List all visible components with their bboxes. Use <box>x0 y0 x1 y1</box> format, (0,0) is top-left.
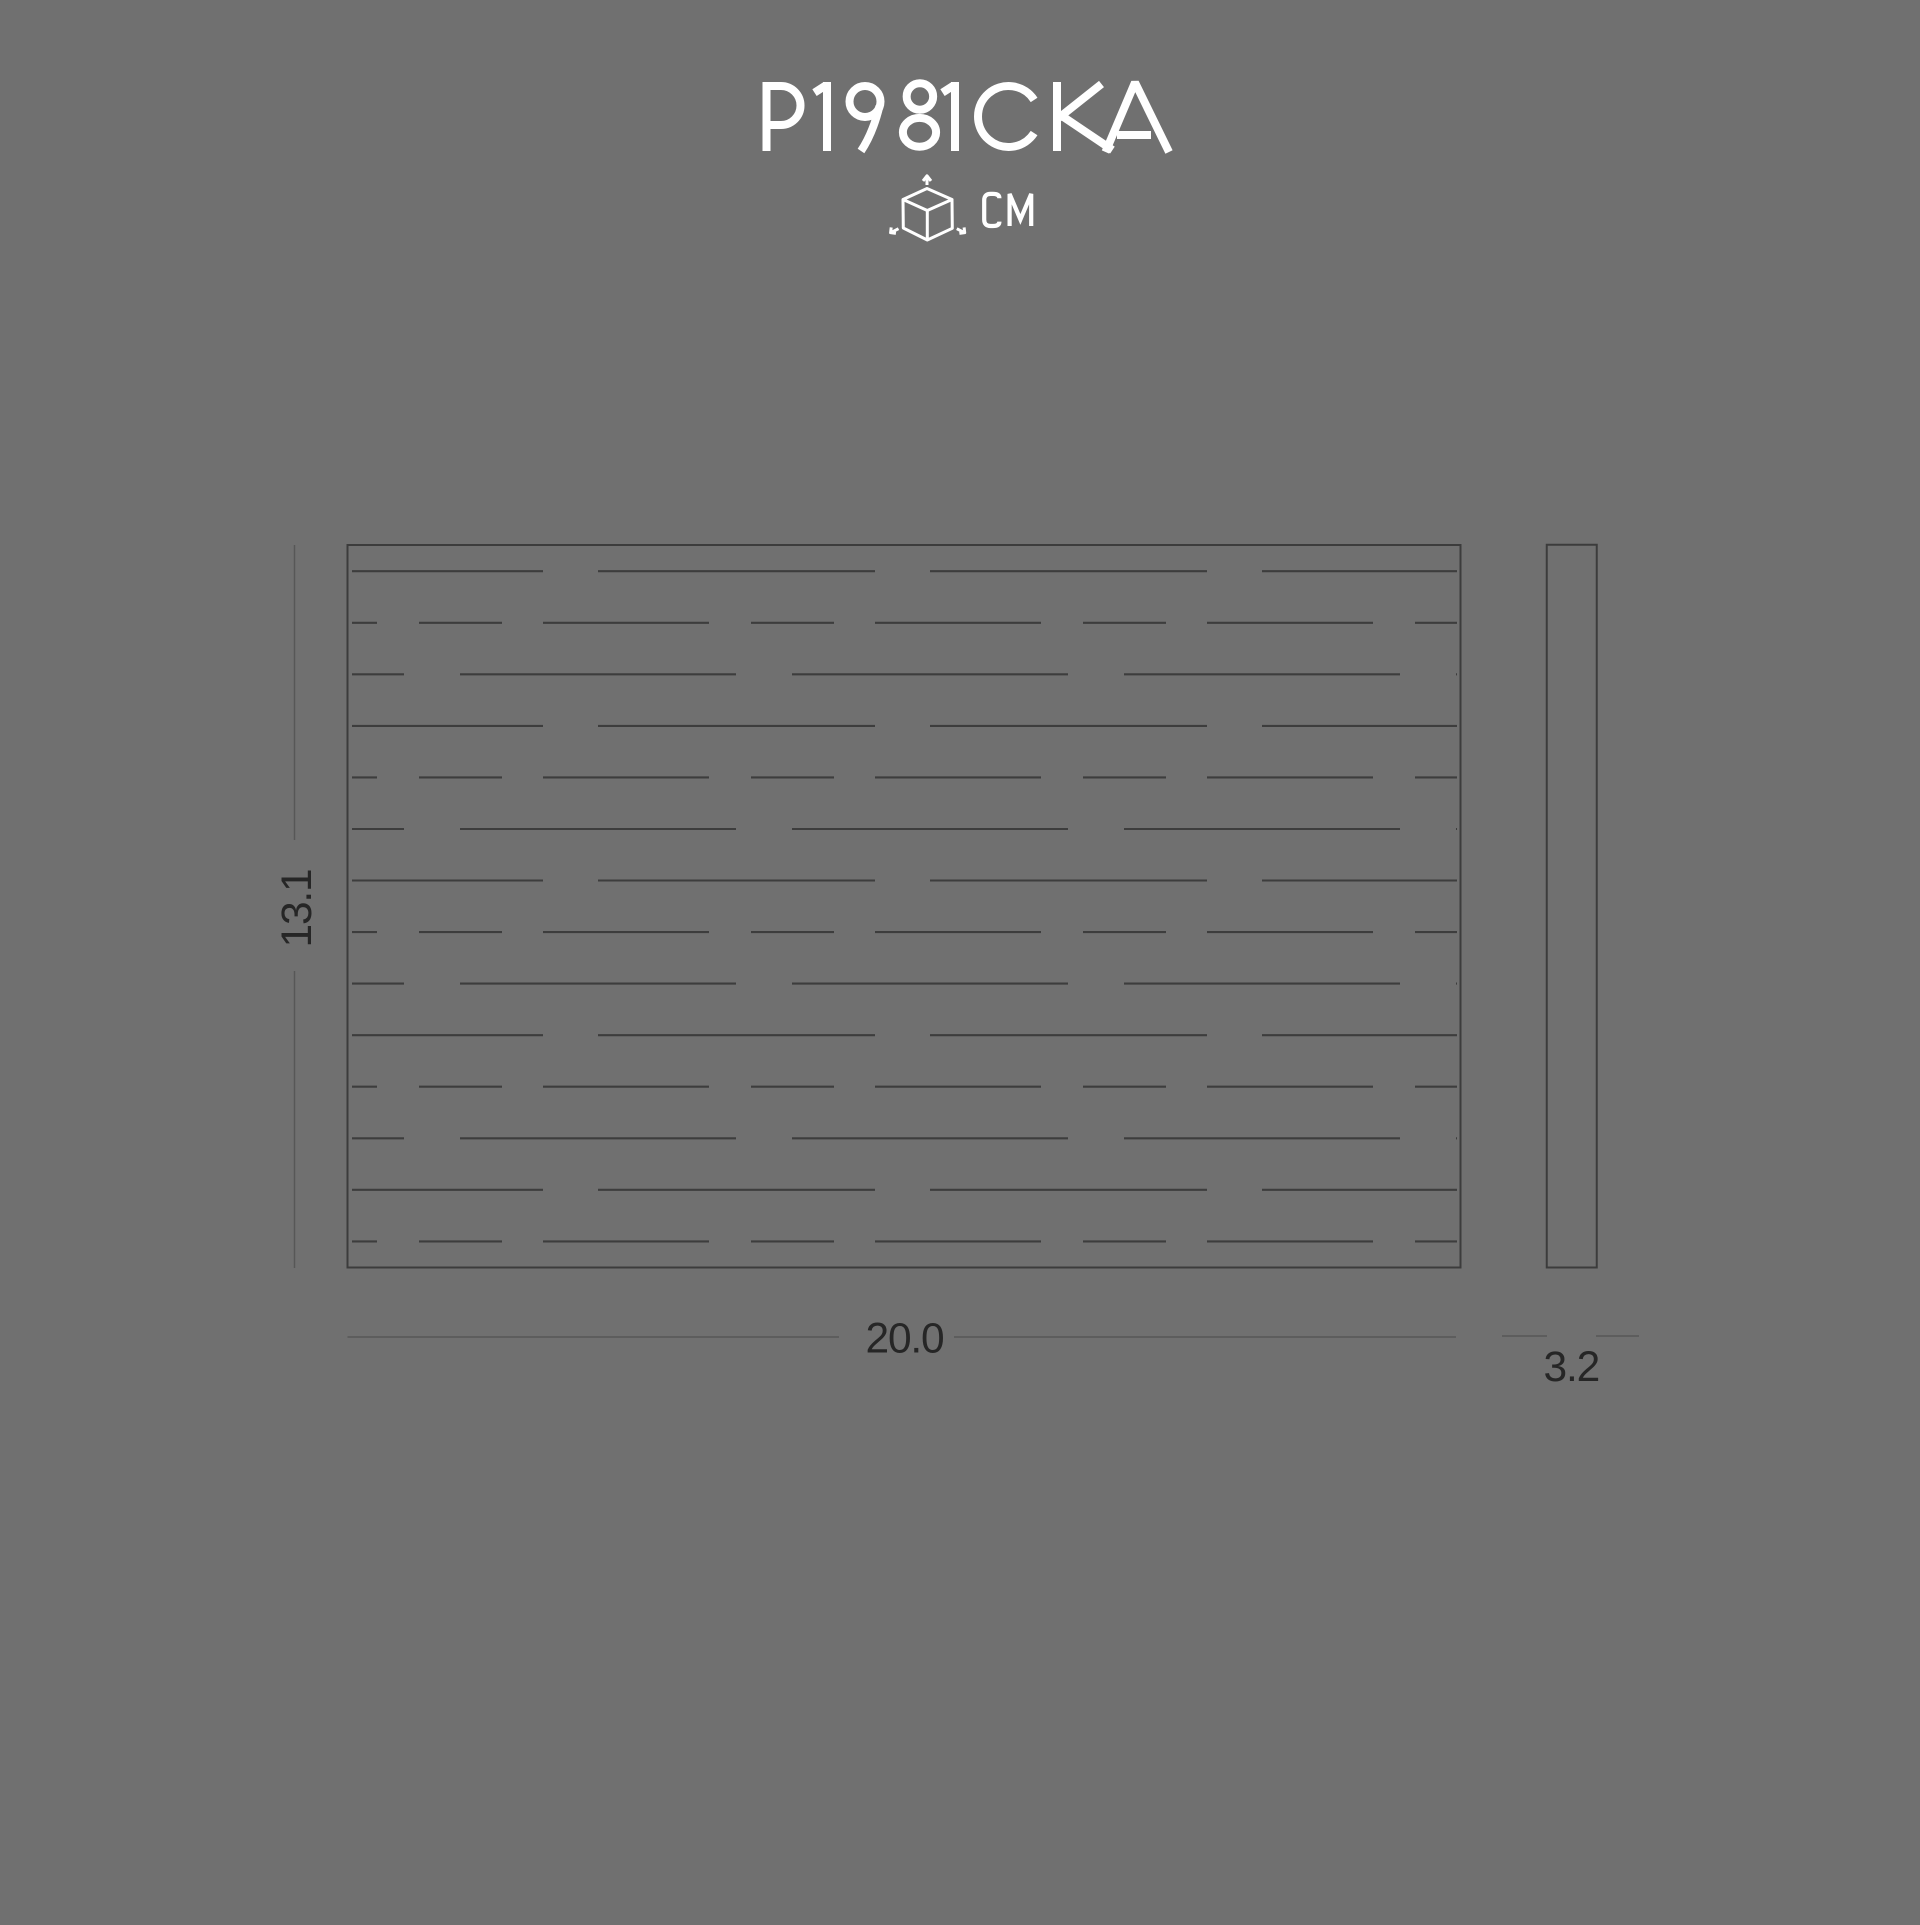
svg-text:3.2: 3.2 <box>1544 1344 1599 1391</box>
svg-text:20.0: 20.0 <box>866 1316 944 1363</box>
svg-text:13.1: 13.1 <box>274 870 321 948</box>
